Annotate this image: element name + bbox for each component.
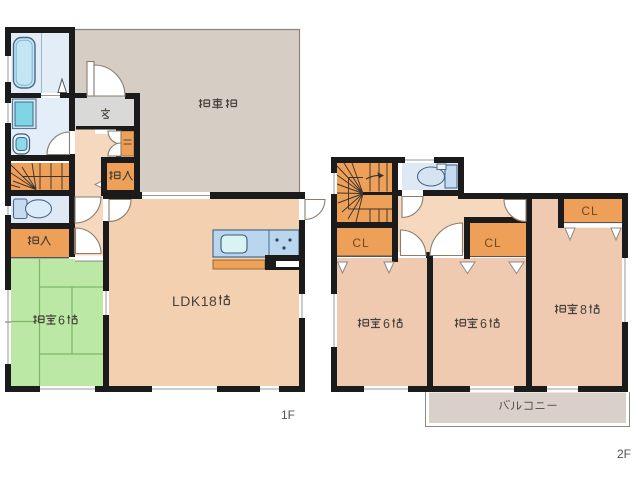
svg-text:CL: CL — [352, 236, 369, 250]
svg-text:1F: 1F — [281, 408, 295, 422]
svg-text:6: 6 — [383, 317, 390, 331]
svg-text:LDK18: LDK18 — [172, 293, 217, 309]
svg-text:6: 6 — [480, 317, 487, 331]
svg-text:CL: CL — [484, 236, 501, 250]
svg-text:2F: 2F — [617, 447, 631, 461]
svg-text:6: 6 — [58, 314, 65, 328]
svg-text:8: 8 — [580, 303, 587, 317]
svg-text:CL: CL — [581, 204, 598, 218]
